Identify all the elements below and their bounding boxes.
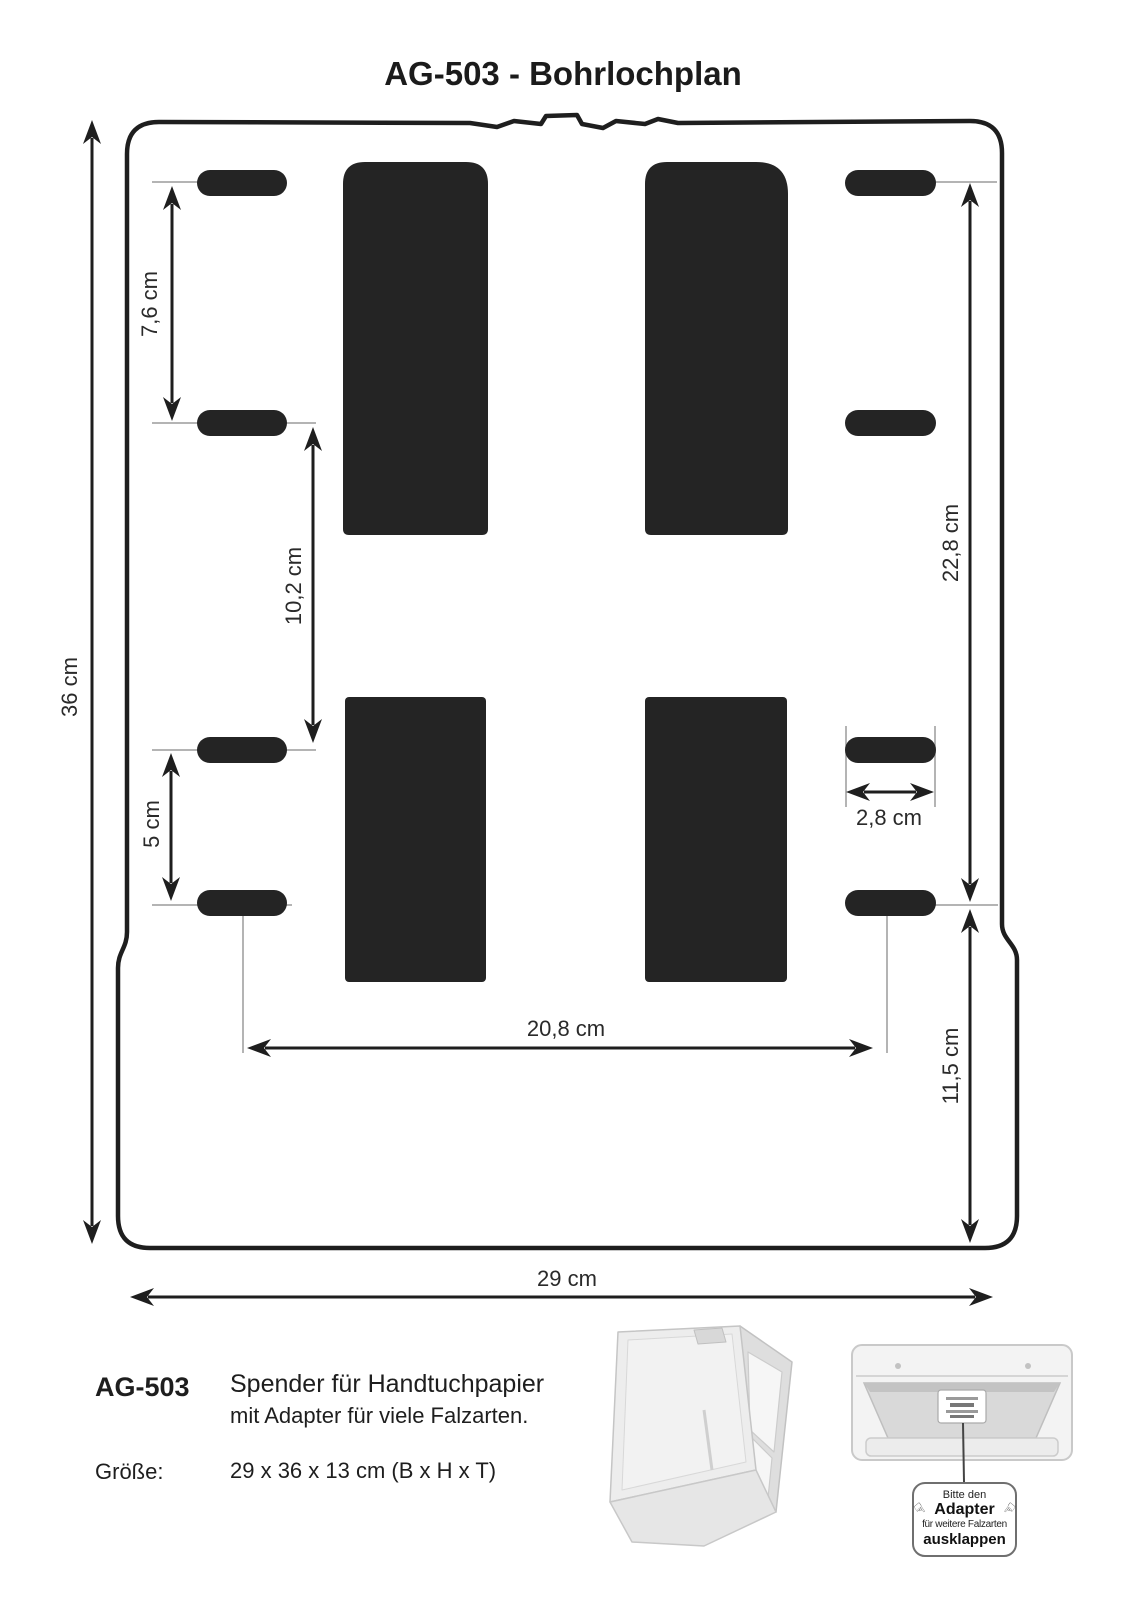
product-description: Spender für Handtuchpapier: [230, 1370, 544, 1399]
dispenser-front-photo: [852, 1345, 1072, 1482]
cutout-bottom-left: [345, 697, 486, 982]
product-size-value: 29 x 36 x 13 cm (B x H x T): [230, 1458, 496, 1484]
cutout-top-right: [645, 162, 788, 535]
arrowheads: [83, 120, 993, 1306]
slot-left-3: [197, 737, 287, 763]
dimension-lines: [92, 138, 975, 1297]
note-connector-line: [963, 1423, 964, 1482]
dim-label-20-8cm: 20,8 cm: [527, 1016, 605, 1042]
note-line-1: Bitte den: [914, 1489, 1015, 1501]
cutout-bottom-right: [645, 697, 787, 982]
bohrlochplan-page: AG-503 - Bohrlochplan: [0, 0, 1131, 1600]
slot-left-2: [197, 410, 287, 436]
plate-outline: [118, 115, 1017, 1248]
extension-lines: [152, 182, 998, 1053]
slot-right-3: [845, 737, 936, 763]
dim-label-2-8cm: 2,8 cm: [856, 805, 922, 831]
product-description-2: mit Adapter für viele Falzarten.: [230, 1403, 528, 1429]
dim-label-29cm: 29 cm: [537, 1266, 597, 1292]
dim-label-7-6cm: 7,6 cm: [137, 271, 163, 337]
slot-right-2: [845, 410, 936, 436]
slot-left-4: [197, 890, 287, 916]
cutout-top-left: [343, 162, 488, 535]
note-line-3: für weitere Falzarten: [914, 1519, 1015, 1530]
dim-label-36cm: 36 cm: [57, 657, 83, 717]
dim-label-5cm: 5 cm: [139, 800, 165, 848]
dim-label-11-5cm: 11,5 cm: [938, 1028, 964, 1105]
product-model: AG-503: [95, 1372, 190, 1403]
dim-label-22-8cm: 22,8 cm: [938, 504, 964, 582]
slot-left-1: [197, 170, 287, 196]
slot-right-1: [845, 170, 936, 196]
note-line-4: ausklappen: [914, 1531, 1015, 1548]
dispenser-open-photo: [610, 1326, 792, 1546]
adapter-note-box: ☟ ☟ Bitte den Adapter für weitere Falzar…: [912, 1482, 1017, 1557]
drill-plan-diagram: [0, 0, 1131, 1600]
slot-right-4: [845, 890, 936, 916]
product-size-label: Größe:: [95, 1459, 163, 1485]
dim-label-10-2cm: 10,2 cm: [281, 547, 307, 625]
note-line-2: Adapter: [914, 1501, 1015, 1519]
mounting-slots: [197, 170, 936, 916]
